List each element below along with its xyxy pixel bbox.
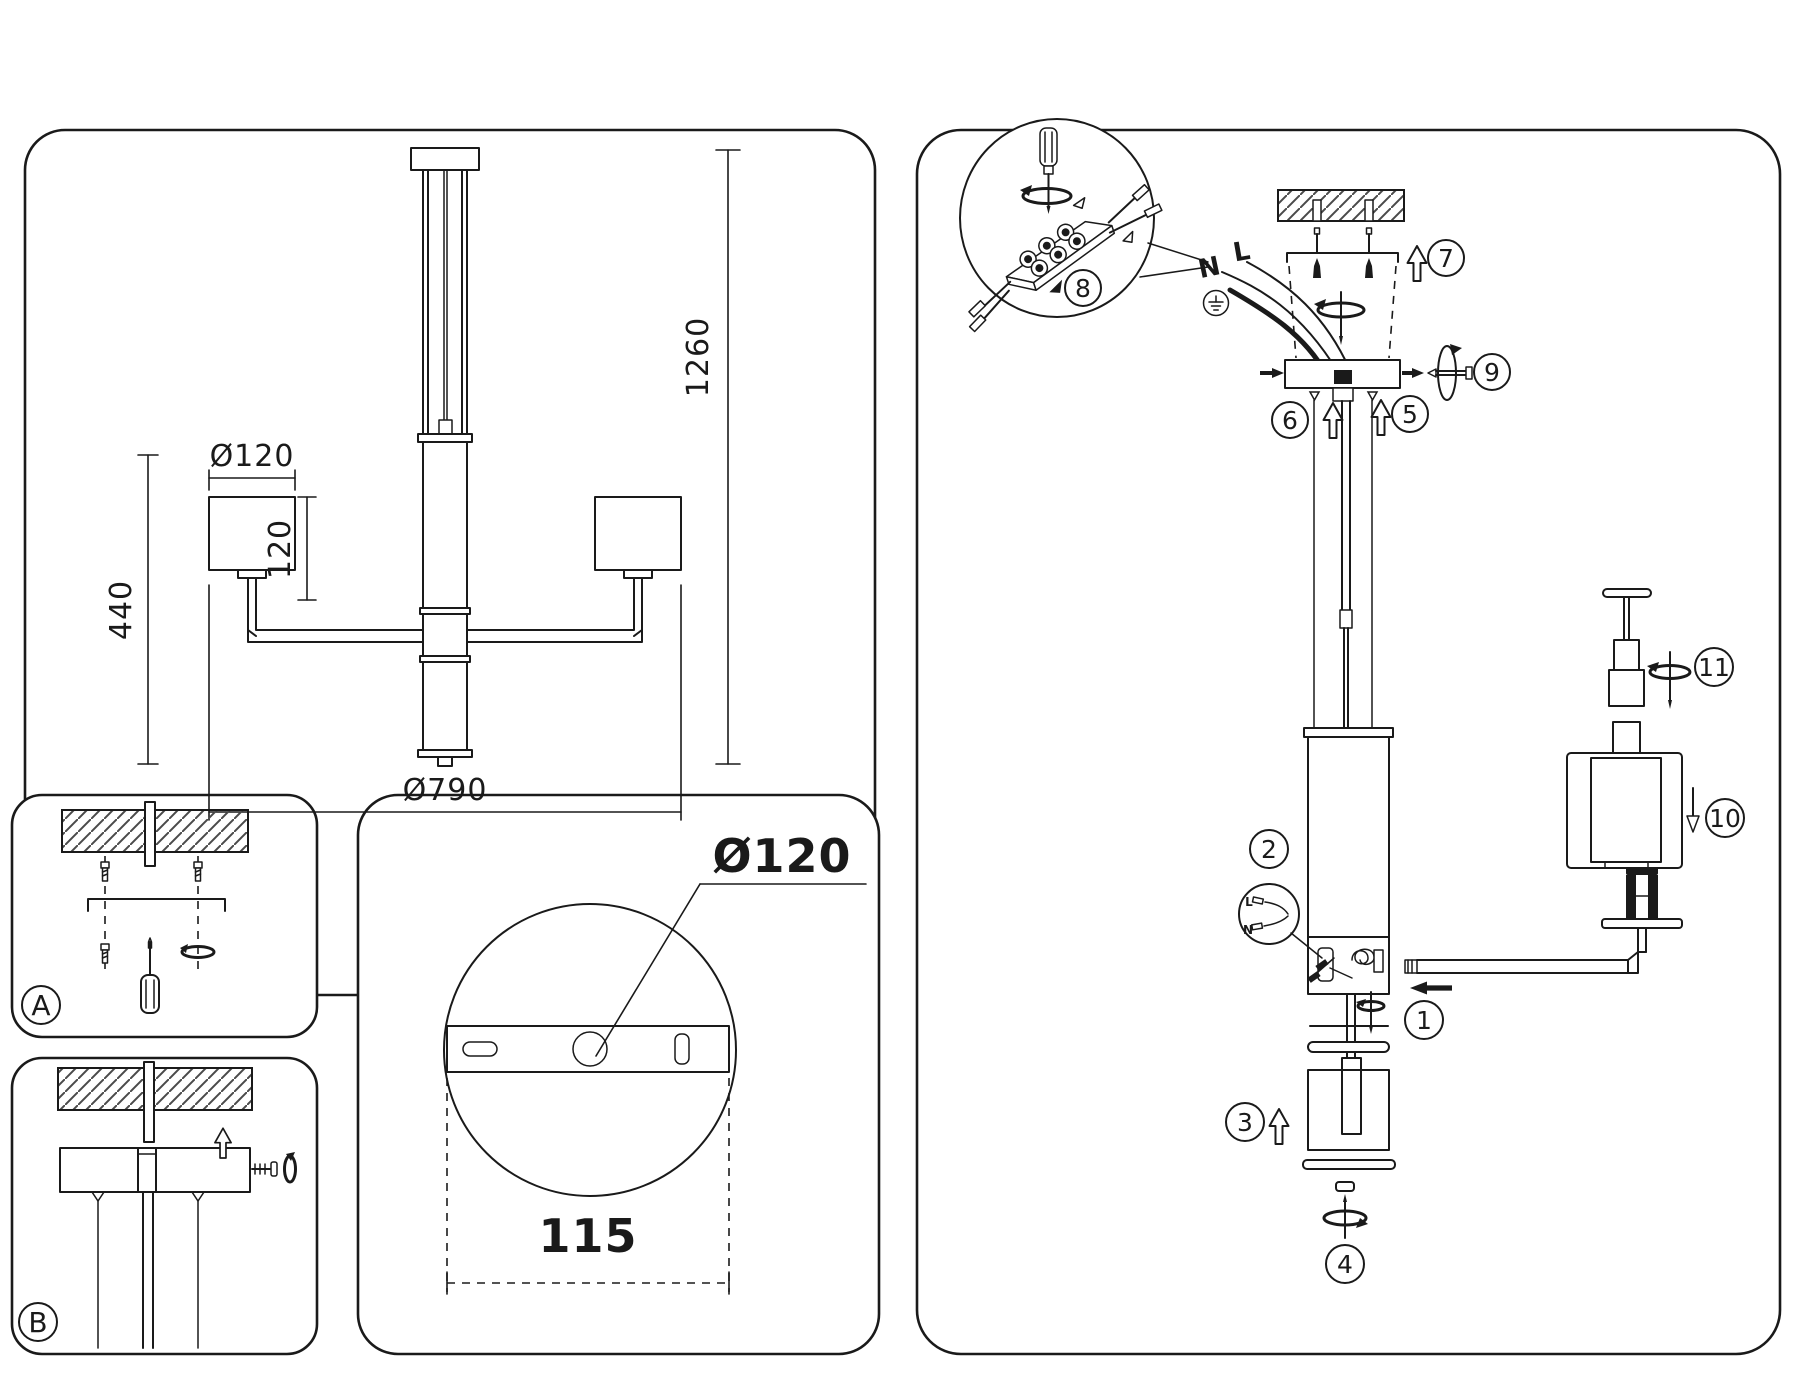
step-5-badge: 5 [1392, 396, 1428, 432]
asm-ceiling-hatch [1278, 190, 1404, 221]
step-3-badge: 3 [1226, 1103, 1264, 1141]
step-10-badge: 10 [1706, 799, 1744, 837]
step-5-label: 5 [1402, 400, 1418, 429]
instruction-sheet: Ø120 440 120 1260 Ø790 [0, 0, 1800, 1400]
step-1-label: 1 [1416, 1006, 1432, 1035]
a-threaded-rod [145, 802, 155, 866]
arm-flange [1602, 919, 1682, 928]
step-3-label: 3 [1237, 1108, 1253, 1137]
fv-right-shade [595, 497, 681, 578]
cv-mounting-bracket [447, 1026, 729, 1072]
step-b-badge: B [19, 1303, 57, 1341]
fv-left-height-label: 440 [104, 580, 139, 640]
step-11-label: 11 [1698, 653, 1730, 682]
step-a-badge: A [22, 986, 60, 1024]
bottom-ring-plate [1303, 1160, 1395, 1169]
a-screw-lower-left [101, 944, 109, 963]
fv-column [418, 434, 472, 766]
step-2-label: 2 [1261, 835, 1277, 864]
fv-shade-height-label: 120 [263, 519, 298, 579]
fv-overall-height-label: 1260 [681, 317, 716, 397]
step-10-label: 10 [1709, 804, 1741, 833]
step-1-badge: 1 [1405, 1001, 1443, 1039]
step-8-label: 8 [1075, 274, 1091, 303]
step-a-label: A [31, 989, 50, 1022]
step-6-badge: 6 [1272, 402, 1308, 438]
step-2-badge: 2 [1250, 830, 1288, 868]
cv-diameter-label: Ø120 [712, 829, 851, 883]
a-screw-top-right [194, 862, 202, 881]
step-9-label: 9 [1484, 358, 1500, 387]
step-4-badge: 4 [1326, 1245, 1364, 1283]
cv-spacing-label: 115 [538, 1209, 637, 1263]
ring-bar [1308, 1042, 1389, 1052]
fv-ceiling-canopy [411, 148, 479, 170]
b-threaded-stud [144, 1062, 154, 1142]
fv-overall-diameter-label: Ø790 [403, 773, 488, 808]
step-7-badge: 7 [1428, 240, 1464, 276]
bottom-finial-piece [1336, 1182, 1354, 1191]
step-6-label: 6 [1282, 406, 1298, 435]
step-b-label: B [28, 1306, 47, 1339]
a-screw-top-left [101, 862, 109, 881]
step-7-label: 7 [1438, 244, 1454, 273]
step-9-badge: 9 [1474, 354, 1510, 390]
fv-shade-diameter-label: Ø120 [210, 439, 295, 474]
ground-icon [1204, 291, 1229, 316]
step-11-badge: 11 [1695, 648, 1733, 686]
step-4-label: 4 [1337, 1250, 1353, 1279]
arm-threaded-tip [1405, 960, 1417, 973]
step-8-badge: 8 [1065, 270, 1101, 306]
